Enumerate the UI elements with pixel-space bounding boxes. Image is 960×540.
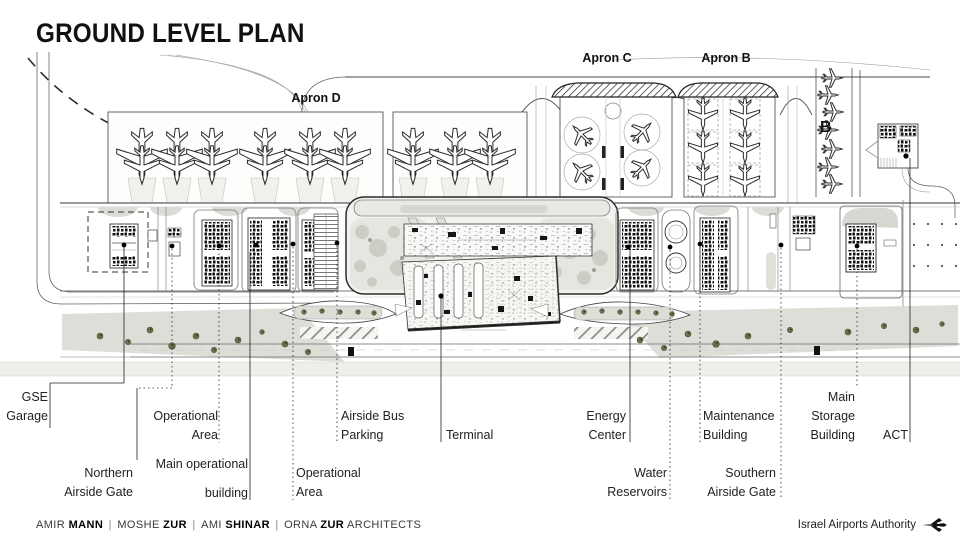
authority-name: Israel Airports Authority	[798, 519, 916, 531]
credit-separator: |	[187, 519, 201, 531]
credit-part: ZUR	[163, 519, 187, 531]
callout-operational-area-1: OperationalArea	[153, 407, 218, 445]
credit-part: AMI	[201, 519, 225, 531]
label-apron-b: Apron B	[701, 51, 750, 65]
callout-maintenance-building: MaintenanceBuilding	[703, 407, 775, 445]
apron-d-area	[108, 112, 527, 203]
callout-water-reservoirs: WaterReservoirs	[607, 464, 667, 502]
credit-separator: |	[103, 519, 117, 531]
callout-southern-airside-gate: SouthernAirside Gate	[707, 464, 776, 502]
callout-northern-airside-gate: NorthernAirside Gate	[64, 464, 133, 502]
callout-main-storage-building: MainStorageBuilding	[811, 388, 855, 445]
callout-operational-area-2: OperationalArea	[296, 464, 361, 502]
footer: AMIR MANN | MOSHE ZUR | AMI SHINAR | ORN…	[0, 514, 960, 540]
southern-airside-gate-structures	[770, 207, 815, 291]
callout-act: ACT	[883, 426, 908, 445]
apron-b-area	[678, 83, 778, 197]
credit-part: SHINAR	[225, 519, 270, 531]
act-building	[866, 124, 955, 218]
callout-energy-center: EnergyCenter	[586, 407, 626, 445]
callout-gse-garage: GSEGarage	[6, 388, 48, 426]
water-reservoirs	[662, 210, 690, 292]
energy-center-building	[616, 208, 658, 292]
page-title: GROUND LEVEL PLAN	[36, 18, 305, 49]
maintenance-building-structure	[694, 206, 776, 294]
credit-separator: |	[270, 519, 284, 531]
authority-block: Israel Airports Authority	[798, 517, 948, 533]
callout-main-operational-building: Main operationalbuilding	[156, 455, 248, 503]
credit-part: MOSHE	[117, 519, 163, 531]
site-plan-drawing	[0, 0, 960, 540]
credit-part: ZUR	[320, 519, 344, 531]
credit-part: ARCHITECTS	[344, 519, 421, 531]
architect-credits: AMIR MANN | MOSHE ZUR | AMI SHINAR | ORN…	[36, 519, 421, 531]
label-apron-d: Apron D	[291, 91, 340, 105]
credit-part: ORNA	[284, 519, 320, 531]
apron-c-area	[552, 83, 676, 197]
apron-c-canopy	[552, 83, 676, 97]
slide: GROUND LEVEL PLAN Apron DApron CApron B …	[0, 0, 960, 540]
northern-airside-gate-structures	[148, 207, 181, 291]
airside-bus-parking-strip	[314, 214, 338, 290]
column-grid-dots	[913, 223, 957, 267]
callout-terminal: Terminal	[446, 426, 493, 445]
credit-part: MANN	[69, 519, 104, 531]
gse-garage-building	[88, 212, 148, 272]
apron-b-canopy	[678, 83, 778, 97]
marker-b: B	[820, 119, 832, 137]
credit-part: AMIR	[36, 519, 69, 531]
callout-airside-bus-parking: Airside BusParking	[341, 407, 404, 445]
label-apron-c: Apron C	[582, 51, 631, 65]
iaa-plane-icon	[922, 517, 948, 533]
